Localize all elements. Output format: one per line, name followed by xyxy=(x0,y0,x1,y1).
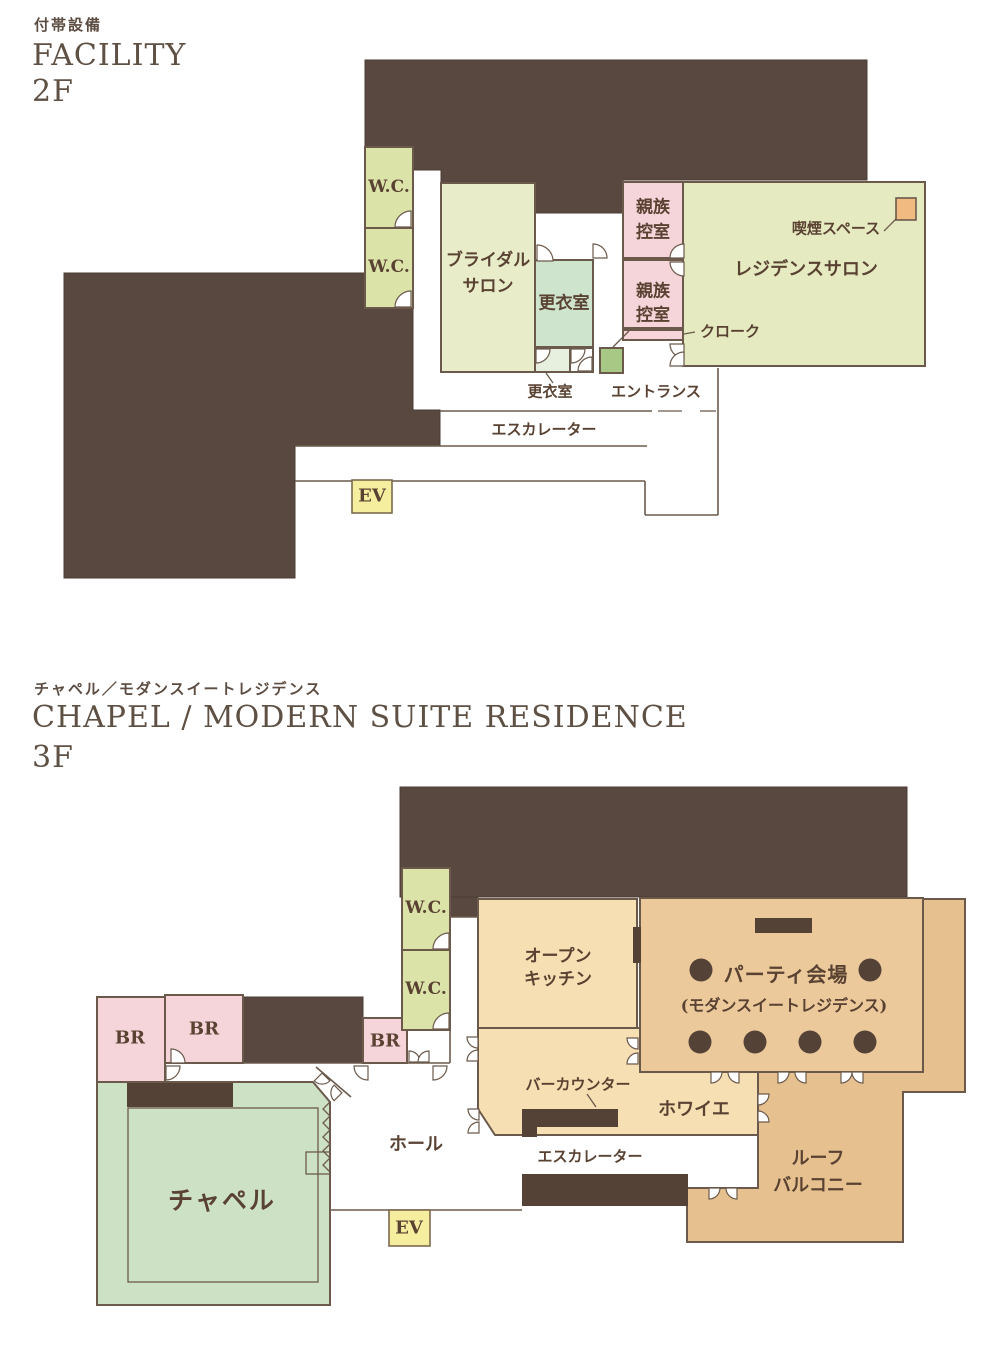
bar-counter-foot xyxy=(522,1127,537,1137)
label-br-1: BR xyxy=(115,1028,145,1049)
label-escalator-3f: エスカレーター xyxy=(537,1146,642,1167)
label-family-waiting-2a: 親族 xyxy=(636,277,670,302)
label-chapel: チャペル xyxy=(168,1181,276,1217)
label-wc-3f-1: W.C. xyxy=(405,898,447,918)
label-br-2: BR xyxy=(189,1019,219,1040)
label-family-waiting-1a: 親族 xyxy=(636,193,670,218)
label-cloak: クローク xyxy=(700,321,760,342)
label-family-waiting-2b: 控室 xyxy=(636,301,670,326)
floor-plan-canvas xyxy=(0,0,1000,1353)
building-mass-3f-mid xyxy=(243,997,363,1063)
building-mass-3f-top-tab xyxy=(450,897,478,917)
label-br-3: BR xyxy=(370,1031,400,1052)
label-changing-main: 更衣室 xyxy=(539,289,590,314)
label-family-waiting-1b: 控室 xyxy=(636,218,670,243)
header-3f-title: CHAPEL / MODERN SUITE RESIDENCE xyxy=(32,700,688,735)
bar-counter-shape xyxy=(522,1109,618,1127)
plan-3f xyxy=(97,787,965,1305)
escalator-block-3f xyxy=(522,1174,688,1206)
label-bar-counter: バーカウンター xyxy=(525,1074,630,1095)
header-2f-floor: 2F xyxy=(32,74,74,109)
label-wc-2f-1: W.C. xyxy=(368,177,410,197)
label-roof-balcony-2: バルコニー xyxy=(773,1171,863,1197)
cloak-strip xyxy=(623,330,683,340)
label-changing-small: 更衣室 xyxy=(527,381,572,402)
building-mass-2f-left xyxy=(64,273,440,578)
label-wc-2f-2: W.C. xyxy=(368,257,410,277)
label-residence-salon: レジデンスサロン xyxy=(734,255,878,281)
party-sideboard-bar xyxy=(755,918,812,933)
label-escalator-2f: エスカレーター xyxy=(491,419,596,440)
header-2f-title: FACILITY xyxy=(32,38,186,73)
label-bridal-salon-1: ブライダル xyxy=(446,246,530,271)
label-foyer: ホワイエ xyxy=(658,1095,730,1121)
label-entrance: エントランス xyxy=(611,381,701,402)
label-roof-balcony-1: ルーフ xyxy=(792,1144,845,1170)
chapel-altar-bar xyxy=(127,1083,233,1107)
label-party-venue-sub: (モダンスイートレジデンス) xyxy=(681,992,888,1016)
smoking-space-marker xyxy=(896,198,916,220)
party-kitchen-door-bar xyxy=(633,927,641,963)
label-open-kitchen-2: キッチン xyxy=(524,965,592,990)
header-2f-kicker: 付帯設備 xyxy=(34,14,102,35)
label-smoking-space: 喫煙スペース xyxy=(792,218,880,239)
plan-2f xyxy=(64,60,925,578)
label-open-kitchen-1: オープン xyxy=(525,942,592,967)
header-3f-floor: 3F xyxy=(32,740,74,775)
label-wc-3f-2: W.C. xyxy=(405,979,447,999)
label-elevator-2f: EV xyxy=(358,486,386,507)
label-bridal-salon-2: サロン xyxy=(463,272,514,297)
label-party-venue: パーティ会場 xyxy=(724,959,849,988)
floor-plan-page: 付帯設備 FACILITY 2F チャペル／モダンスイートレジデンス CHAPE… xyxy=(0,0,1000,1353)
building-mass-3f-top xyxy=(400,787,907,897)
entrance-marker xyxy=(600,348,623,373)
label-elevator-3f: EV xyxy=(395,1218,423,1239)
header-3f-kicker: チャペル／モダンスイートレジデンス xyxy=(34,678,322,699)
label-hall: ホール xyxy=(389,1130,443,1156)
